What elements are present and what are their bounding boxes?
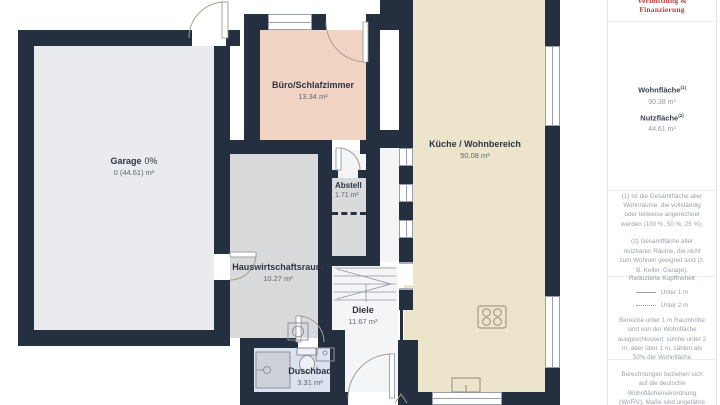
reduced-headroom-line [332, 212, 366, 215]
legend-label: Unter 1 m [661, 288, 689, 297]
footnote-1: (1) Ist die Gesamtfläche aller Wohnräume… [617, 192, 707, 230]
room-label-garage: Garage0% 0 (44.61) m² [44, 156, 224, 177]
wohnflaeche-label: Wohnfläche(1) [638, 85, 686, 95]
garage-entry-door-icon [189, 2, 228, 38]
wall [18, 330, 230, 346]
wall [240, 392, 330, 405]
room-name: Hauswirtschaftsraum [232, 262, 324, 272]
room-name: Büro/Schlafzimmer [272, 80, 354, 90]
room-name: Garage [110, 156, 141, 166]
floor-plan: Garage0% 0 (44.61) m² Büro/Schlafzimmer … [0, 0, 600, 405]
interior-window [399, 184, 413, 202]
room-kueche-floor[interactable] [413, 0, 545, 392]
interior-window [399, 220, 413, 238]
room-area: 10.27 m² [198, 274, 358, 284]
window [545, 46, 560, 126]
wall [18, 30, 34, 346]
floorplan-viewer: Garage0% 0 (44.61) m² Büro/Schlafzimmer … [0, 0, 720, 405]
room-name: Diele [352, 305, 374, 315]
wall [399, 166, 413, 184]
wall [380, 0, 413, 30]
wall [18, 30, 192, 46]
room-progress: 0% [145, 156, 158, 166]
room-area: 0 (44.61) m² [44, 168, 224, 178]
wall [244, 14, 260, 140]
disclaimer: Berechnungen beziehen sich auf die deuts… [608, 360, 716, 405]
opening-jamb [399, 262, 413, 264]
window [268, 14, 312, 30]
room-area: 50.08 m² [400, 151, 550, 161]
room-label-abstell: Abstell 1.71 m² [335, 181, 375, 200]
room-label-hwr: Hauswirtschaftsraum 10.27 m² [198, 262, 358, 283]
nutzflaeche-value: 44.61 m² [648, 126, 676, 133]
wall [502, 392, 560, 405]
wall [230, 140, 332, 154]
brand-header: Vermittlung & Finanzierung [608, 0, 716, 22]
footnote-ref: (2) [678, 113, 684, 118]
wall [399, 202, 413, 220]
room-garage-floor[interactable] [34, 46, 214, 330]
room-area: 13.34 m² [243, 92, 383, 102]
room-name: Abstell [335, 181, 362, 190]
legend-label: Unter 2 m [661, 301, 689, 310]
brand-text: Vermittlung & Finanzierung [617, 0, 707, 14]
legend-row-under-2m: Unter 2 m [636, 301, 689, 310]
wall [330, 392, 348, 405]
legend-row-under-1m: Unter 1 m [636, 288, 689, 297]
solid-line-sample [636, 292, 656, 293]
area-summary: Wohnfläche(1) 90.38 m² Nutzfläche(2) 44.… [608, 22, 716, 191]
room-label-duschbad: Duschbad 3.31 m² [260, 366, 360, 387]
room-name: Duschbad [288, 366, 332, 376]
room-name: Küche / Wohnbereich [429, 139, 521, 149]
headroom-legend: Reduzierte Kopffreiheit Unter 1 m Unter … [608, 277, 716, 360]
footnote-2: (2) Gesamtfläche aller nutzbaren Räume, … [617, 237, 707, 275]
room-diele-corridor [380, 148, 399, 262]
wall [214, 46, 230, 254]
wall [366, 150, 380, 266]
wall [380, 130, 399, 148]
wohnflaeche-value: 90.38 m² [648, 99, 676, 106]
wall [399, 238, 413, 262]
footnote-ref: (1) [680, 85, 686, 90]
room-label-buero: Büro/Schlafzimmer 13.34 m² [243, 80, 383, 101]
window [545, 296, 560, 368]
nutzflaeche-label: Nutzfläche(2) [640, 113, 683, 123]
footnotes: (1) Ist die Gesamtfläche aller Wohnräume… [608, 191, 716, 277]
headroom-title: Reduzierte Kopffreiheit [629, 274, 695, 283]
wall [418, 392, 432, 405]
wall [398, 340, 418, 405]
headroom-note: Bereiche unter 1 m Raumhöhe sind von der… [617, 316, 707, 362]
room-label-kueche: Küche / Wohnbereich 50.08 m² [400, 139, 550, 160]
info-sidebar: Vermittlung & Finanzierung Wohnfläche(1)… [607, 0, 717, 405]
wall [399, 30, 413, 148]
room-hwr-floor[interactable] [230, 154, 318, 338]
room-area: 3.31 m² [260, 378, 360, 388]
window [432, 392, 502, 405]
room-label-diele: Diele 11.67 m² [313, 305, 413, 326]
wall [545, 0, 560, 46]
wall [226, 30, 240, 46]
dashed-line-sample [636, 305, 656, 306]
room-area: 1.71 m² [335, 191, 375, 200]
wall [318, 330, 345, 348]
room-area: 11.67 m² [313, 317, 413, 327]
opening-jamb [399, 288, 413, 290]
wall [214, 280, 230, 330]
